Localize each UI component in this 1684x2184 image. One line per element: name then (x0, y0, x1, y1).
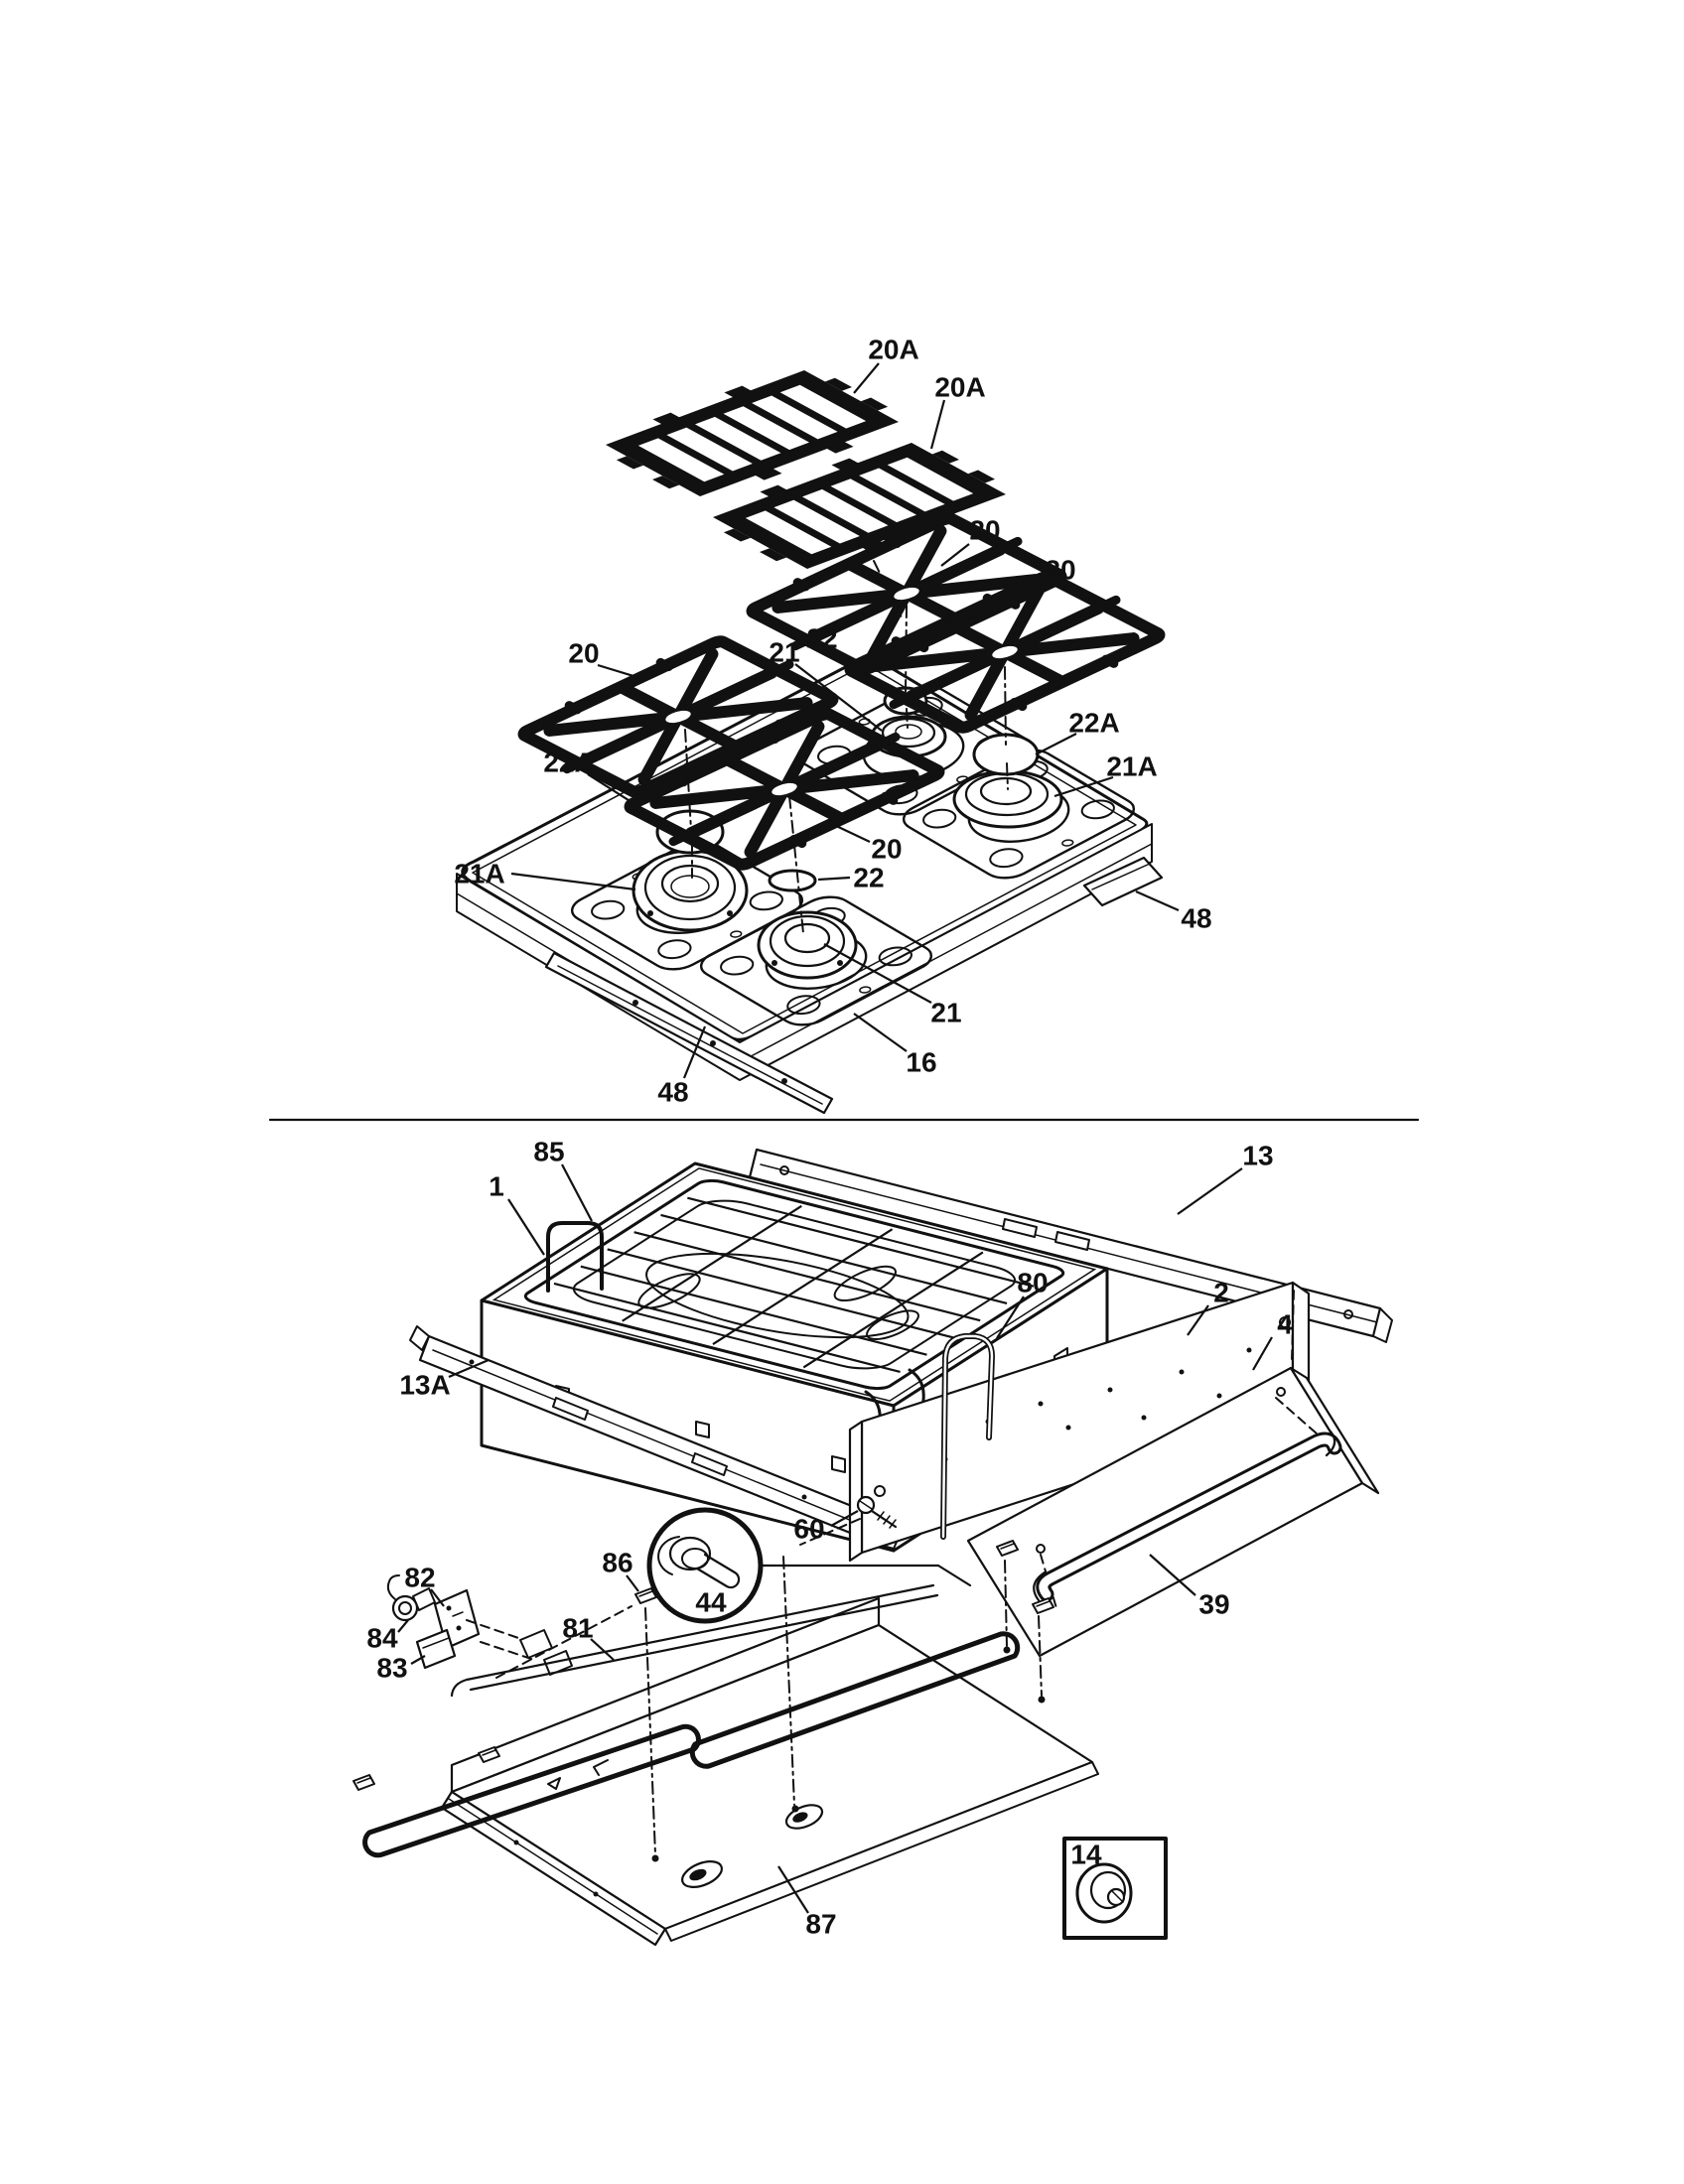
part-label-22A: 22A (543, 748, 594, 778)
burner-base-21-front (759, 912, 856, 978)
part-label-48: 48 (1181, 903, 1211, 934)
part-label-21A: 21A (1106, 751, 1157, 782)
part-label-13A: 13A (399, 1370, 450, 1401)
part-label-86: 86 (602, 1548, 632, 1578)
part-label-39: 39 (1198, 1589, 1229, 1620)
part-label-2: 2 (1213, 1278, 1229, 1308)
part-label-85: 85 (533, 1137, 564, 1167)
part-label-20: 20 (871, 834, 902, 865)
part-label-1: 1 (489, 1171, 504, 1202)
part-label-20A: 20A (868, 335, 918, 365)
part-label-22A: 22A (1068, 708, 1119, 739)
parts-diagram-page: 20A20A20202020212222A21A22A21A2221164848… (0, 0, 1684, 2184)
part-label-44: 44 (695, 1587, 727, 1618)
exploded-diagram: 20A20A20202020212222A21A22A21A2221164848… (0, 0, 1684, 2184)
part-label-20: 20 (969, 515, 1000, 546)
burner-cap-22-front (770, 871, 815, 890)
part-label-13: 13 (1242, 1141, 1273, 1171)
part-label-20: 20 (568, 638, 599, 669)
part-label-87: 87 (805, 1909, 836, 1940)
part-label-80: 80 (1017, 1268, 1048, 1298)
igniter-84 (393, 1596, 417, 1620)
part-label-84: 84 (366, 1623, 398, 1654)
part-label-83: 83 (376, 1653, 407, 1684)
part-label-16: 16 (906, 1047, 936, 1078)
part-label-4: 4 (1277, 1309, 1293, 1340)
part-label-82: 82 (404, 1563, 435, 1593)
part-label-21: 21 (930, 998, 961, 1028)
part-label-48: 48 (657, 1077, 688, 1108)
part-label-21: 21 (769, 637, 799, 668)
part-label-22: 22 (853, 863, 884, 893)
part-label-22: 22 (806, 623, 837, 654)
part-label-60: 60 (793, 1514, 824, 1545)
part-label-81: 81 (562, 1613, 593, 1644)
part-label-20: 20 (1045, 555, 1075, 586)
part-label-14: 14 (1070, 1840, 1102, 1870)
part-label-20A: 20A (934, 372, 985, 403)
part-label-21A: 21A (454, 859, 504, 889)
